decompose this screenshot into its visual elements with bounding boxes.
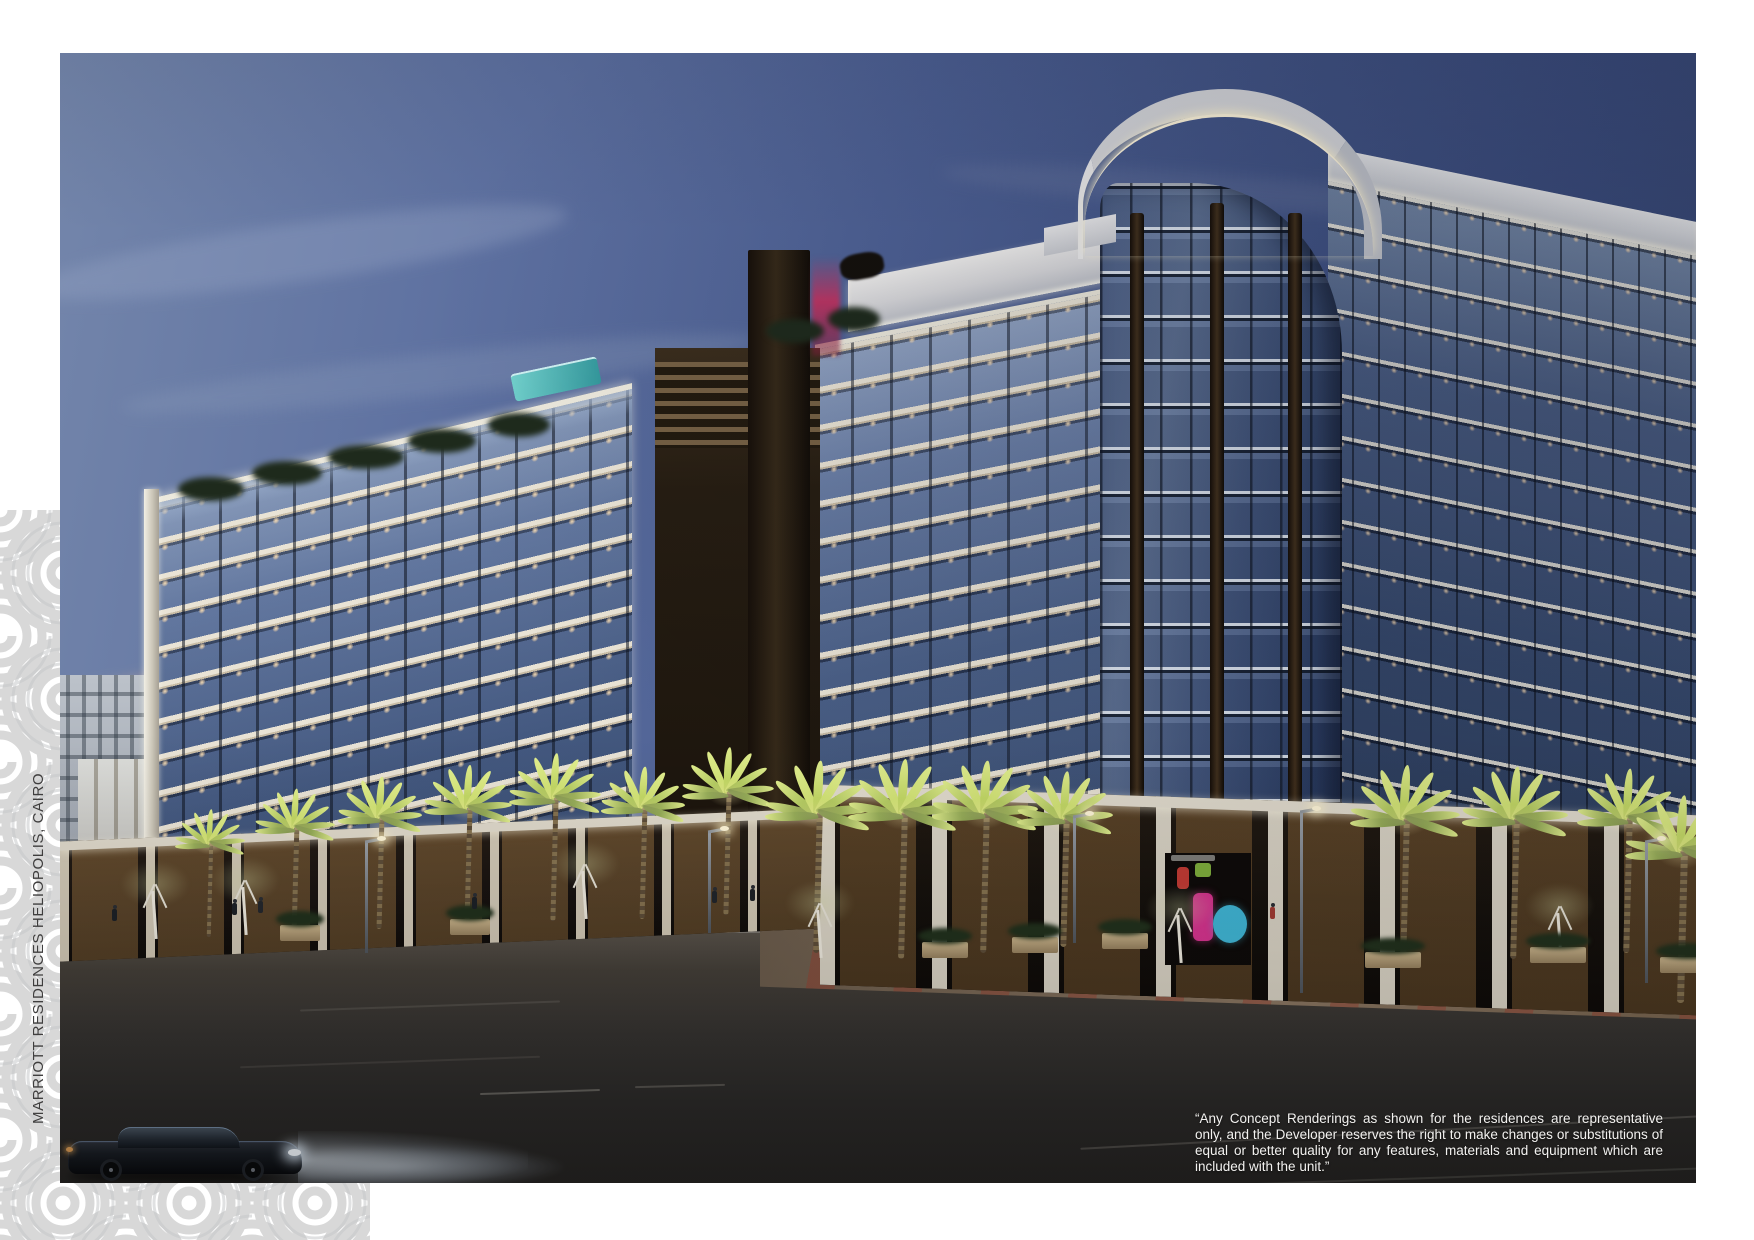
palm-uplight-glow <box>1380 804 1430 837</box>
rooftop-greenery <box>178 477 244 501</box>
disclaimer-text: “Any Concept Renderings as shown for the… <box>1195 1111 1663 1175</box>
planter-box <box>280 925 320 941</box>
art-sign-text <box>1171 855 1215 861</box>
pedestrian <box>750 885 756 901</box>
lamp-pole <box>1073 816 1076 943</box>
tower-bronze-column <box>1210 203 1224 863</box>
palm-uplight-glow <box>624 796 662 821</box>
lamp-light <box>1657 836 1666 841</box>
palm-trunk <box>898 810 908 959</box>
car-headlight <box>288 1149 301 1156</box>
palm-uplight-glow <box>361 806 399 831</box>
tower-bronze-column <box>1130 213 1144 863</box>
tower-bronze-column <box>1288 213 1302 863</box>
palm-trunk <box>1677 848 1688 1003</box>
lamp-light <box>377 836 386 841</box>
pedestrian-body <box>232 903 237 915</box>
planter-shrub <box>446 905 494 921</box>
car-wheel <box>242 1159 264 1181</box>
street-lamp <box>1288 803 1318 993</box>
art-cyan-circle <box>1213 905 1247 943</box>
rooftop-greenery <box>828 307 880 331</box>
pedestrian-body <box>712 891 717 903</box>
pedestrian-body <box>258 901 263 913</box>
planter-box <box>922 942 968 958</box>
street-lamp <box>353 833 383 953</box>
brochure-page: MARRIOTT RESIDENCES HELIOPOLIS, CAIRO <box>0 0 1754 1240</box>
planter-shrub <box>1526 933 1590 949</box>
rooftop-greenery <box>252 461 322 485</box>
lamp-light <box>1312 806 1321 811</box>
pedestrian-body <box>112 909 117 921</box>
wheel-hub <box>109 1168 113 1172</box>
rooftop-greenery <box>766 319 824 343</box>
street-lamp <box>1061 808 1091 943</box>
lamp-pole <box>708 831 711 933</box>
rooftop-greenery <box>488 413 550 437</box>
planter-box <box>1660 957 1696 973</box>
palm-uplight-glow <box>961 798 1009 829</box>
car <box>60 1125 320 1183</box>
uplit-tree <box>1145 885 1215 963</box>
planter-shrub <box>1098 919 1152 935</box>
car-taillight <box>66 1147 73 1152</box>
rooftop-greenery <box>328 445 404 469</box>
planter-box <box>1530 947 1586 963</box>
uplit-tree <box>785 880 855 958</box>
rooftop-greenery <box>408 429 476 453</box>
headlight-beam <box>298 1131 528 1183</box>
palm-uplight-glow <box>1491 804 1539 835</box>
pedestrian <box>712 887 718 903</box>
palm-uplight-glow <box>707 780 749 807</box>
uplit-tree <box>550 841 620 919</box>
pink-accent-light <box>812 256 840 356</box>
pedestrian-body <box>750 889 755 901</box>
palm-uplight-glow <box>448 796 488 822</box>
pedestrian <box>232 899 238 915</box>
uplit-tree <box>120 861 190 939</box>
planter-shrub <box>1361 938 1425 954</box>
street-lamp <box>696 823 726 933</box>
uplit-tree <box>210 857 280 935</box>
pedestrian-body <box>472 897 477 909</box>
pedestrian-body <box>1270 907 1275 919</box>
building-rendering-photo: “Any Concept Renderings as shown for the… <box>60 53 1696 1183</box>
planter-shrub <box>276 911 324 927</box>
palm-uplight-glow <box>794 798 842 829</box>
planter-shrub <box>1008 923 1062 939</box>
planter-box <box>1012 937 1058 953</box>
palm-trunk <box>639 806 647 919</box>
street-lamp <box>1633 833 1663 983</box>
vertical-caption: MARRIOTT RESIDENCES HELIOPOLIS, CAIRO <box>30 773 47 1124</box>
palm-uplight-glow <box>534 786 576 813</box>
tower-crown <box>1078 89 1382 259</box>
car-wheel <box>100 1159 122 1181</box>
planter-shrub <box>1656 943 1696 959</box>
palm-trunk <box>1510 816 1520 959</box>
pedestrian <box>1270 903 1276 919</box>
planter-box <box>1102 933 1148 949</box>
planter-box <box>450 919 490 935</box>
pedestrian <box>112 905 118 921</box>
palm-uplight-glow <box>194 834 226 855</box>
lamp-light <box>1085 811 1094 816</box>
pedestrian <box>472 893 478 909</box>
wheel-hub <box>251 1168 255 1172</box>
art-green-shape <box>1195 863 1211 877</box>
car-cabin <box>118 1127 240 1148</box>
lamp-pole <box>1645 841 1648 983</box>
lamp-light <box>720 826 729 831</box>
palm-uplight-glow <box>878 798 928 831</box>
planter-shrub <box>918 928 972 944</box>
palm-uplight-glow <box>277 817 313 840</box>
lamp-pole <box>1300 811 1303 993</box>
pedestrian <box>258 897 264 913</box>
lamp-pole <box>365 841 368 953</box>
palm-trunk <box>980 810 990 953</box>
planter-box <box>1365 952 1421 968</box>
